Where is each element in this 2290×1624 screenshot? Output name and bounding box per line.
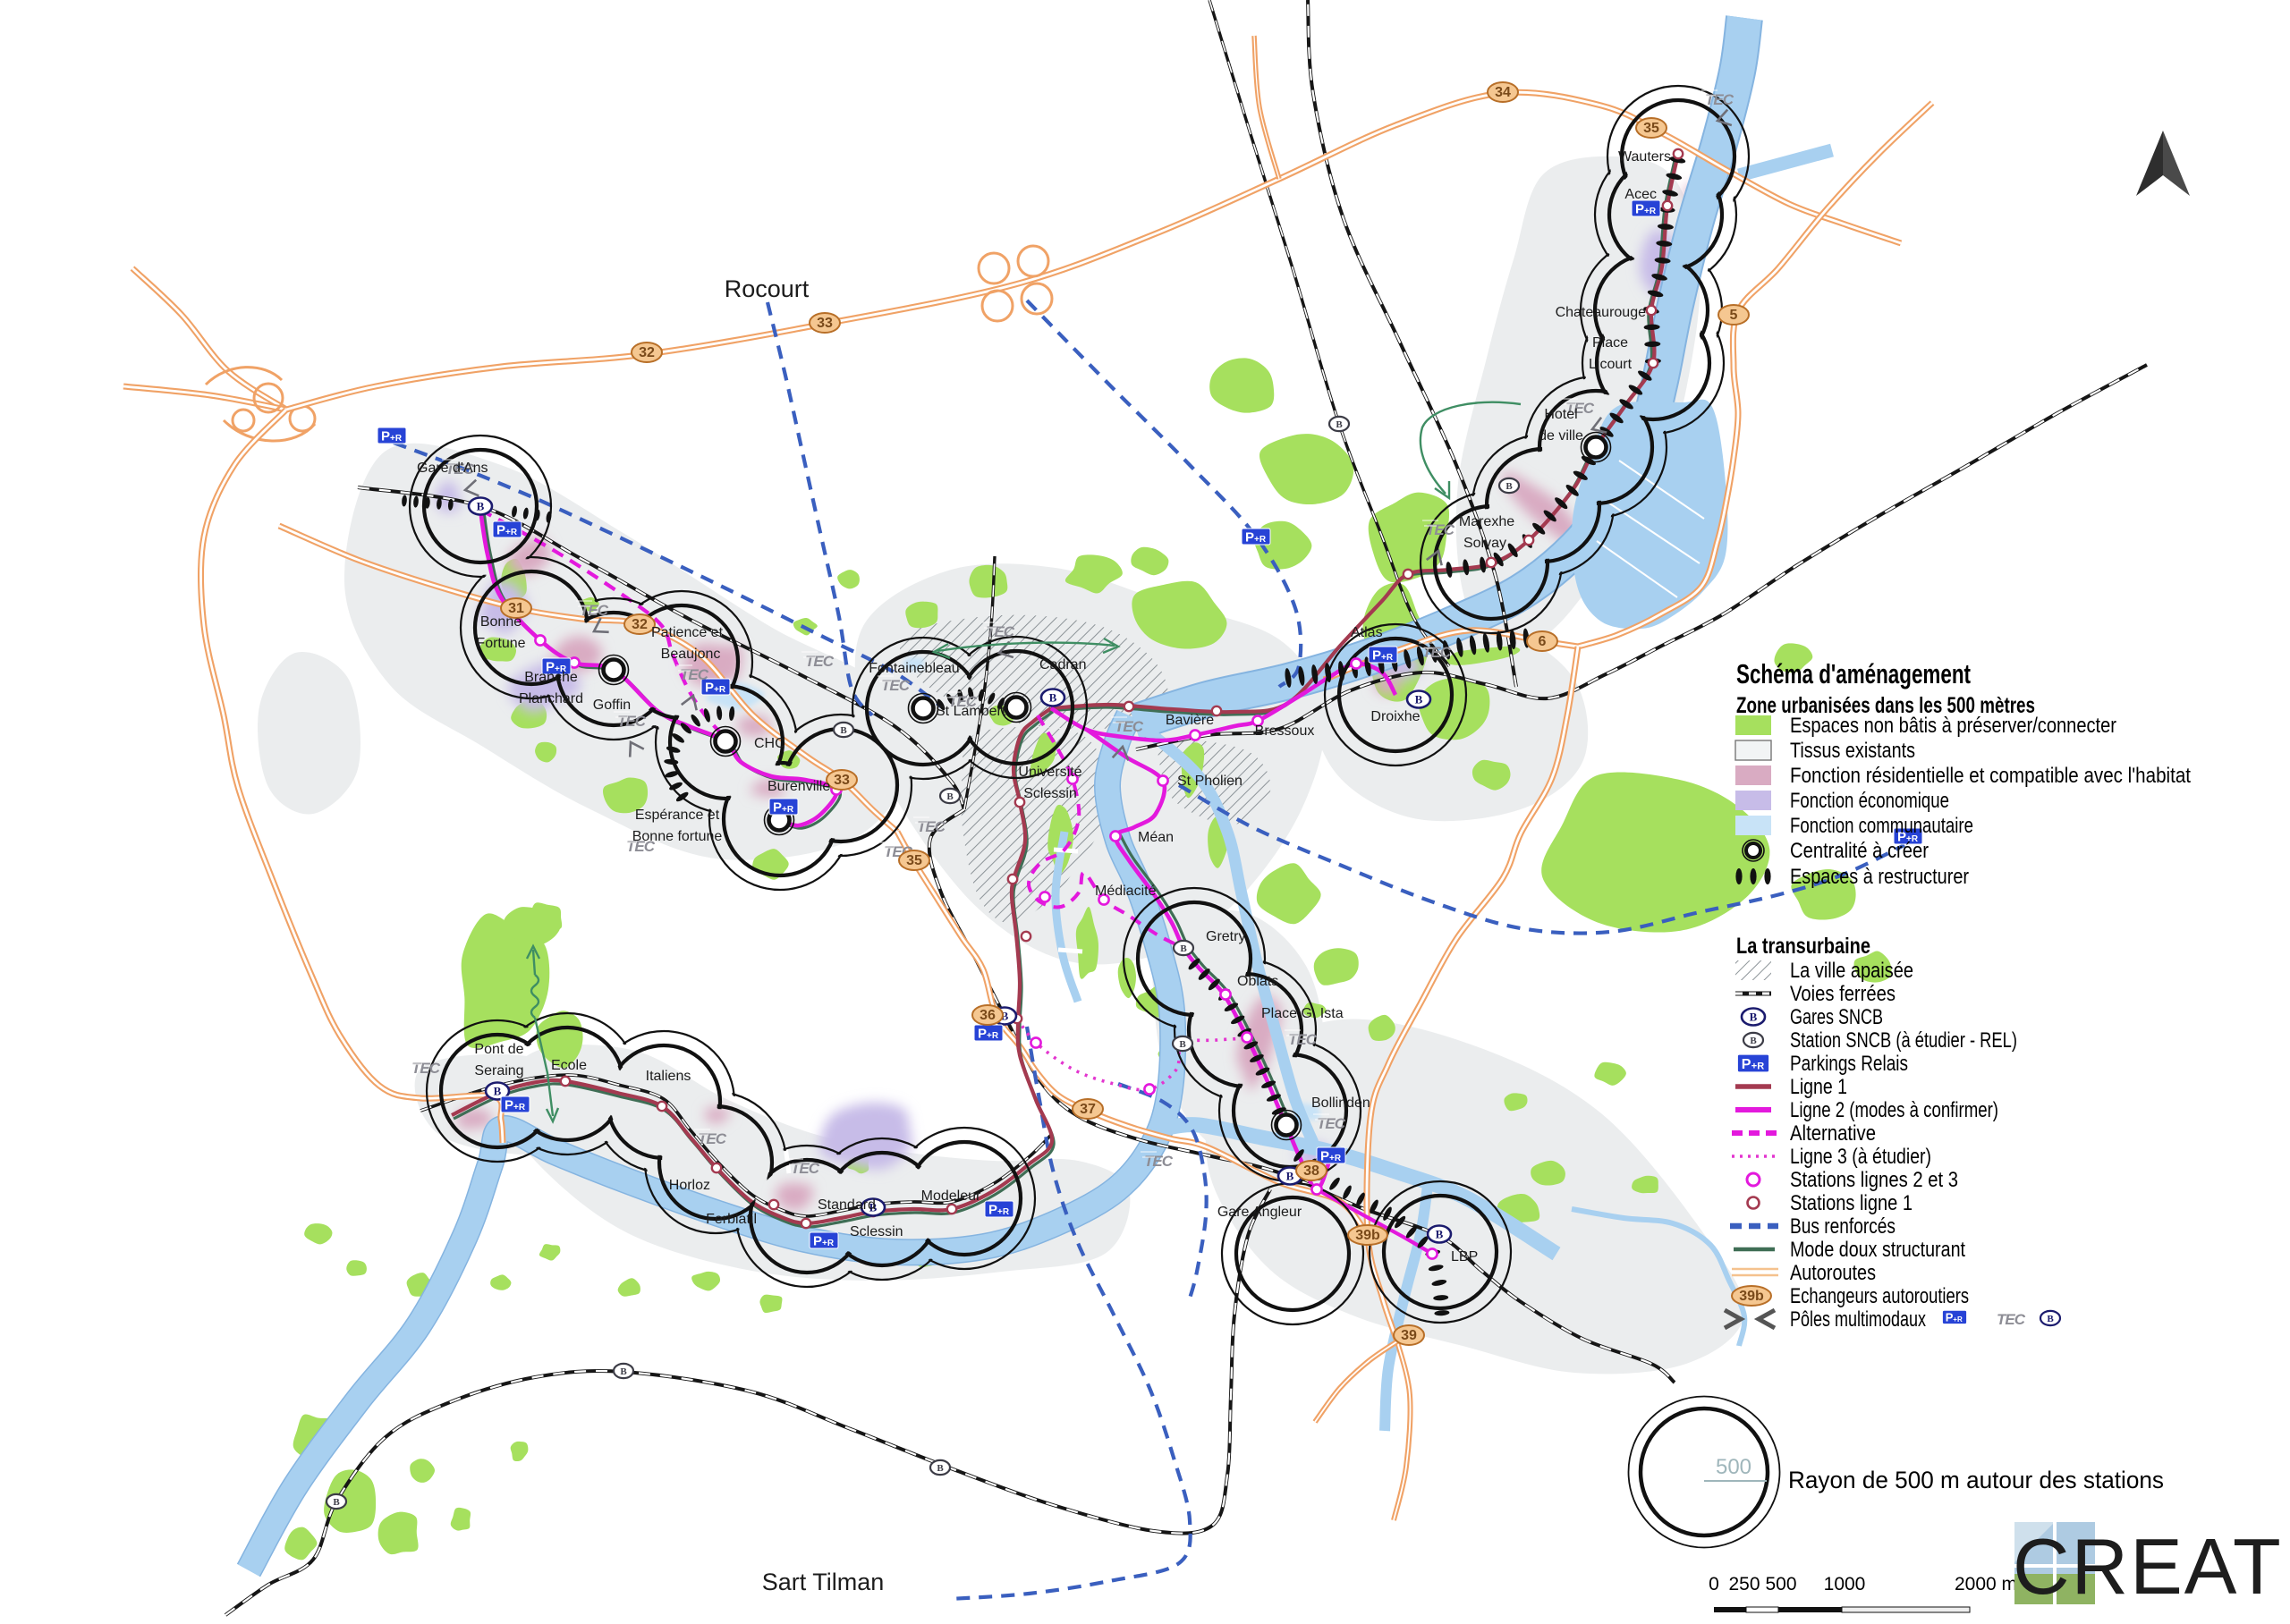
svg-text:P: P [1372,648,1381,664]
svg-text:1000: 1000 [1824,1574,1866,1594]
svg-text:Fonction communautaire: Fonction communautaire [1790,814,1973,838]
svg-text:TEC: TEC [881,677,911,694]
svg-text:Université: Université [1018,765,1081,780]
svg-text:B: B [840,725,847,736]
svg-text:Ligne 3 (à étudier): Ligne 3 (à étudier) [1790,1145,1931,1169]
svg-text:Bonne: Bonne [480,614,522,630]
svg-text:Schéma d'aménagement: Schéma d'aménagement [1736,658,1971,689]
svg-text:Pont de: Pont de [474,1042,523,1057]
svg-text:Voies ferrées: Voies ferrées [1790,982,1896,1006]
svg-text:+R: +R [1254,535,1267,545]
svg-text:P: P [1245,530,1254,546]
svg-text:Gretry: Gretry [1206,929,1245,944]
svg-text:Alternative: Alternative [1790,1121,1876,1146]
svg-text:Branche: Branche [524,670,578,685]
svg-text:Bus renforcés: Bus renforcés [1790,1214,1896,1239]
svg-text:TEC: TEC [680,666,709,683]
svg-text:0: 0 [1709,1574,1719,1594]
svg-text:TEC: TEC [1997,1311,2026,1328]
svg-text:35: 35 [906,853,922,868]
svg-text:P: P [978,1027,987,1042]
svg-text:+R: +R [1329,1154,1342,1163]
svg-text:La transurbaine: La transurbaine [1736,934,1870,959]
svg-text:P: P [496,523,505,538]
svg-text:P: P [505,1098,513,1113]
svg-text:B: B [1049,691,1057,705]
svg-text:B: B [1180,943,1187,954]
svg-text:P: P [1320,1149,1329,1164]
svg-text:Rocourt: Rocourt [725,275,810,302]
svg-text:B: B [1336,419,1343,430]
svg-text:Oblats: Oblats [1237,974,1278,989]
svg-text:Licourt: Licourt [1589,357,1633,372]
svg-text:Ligne 2 (modes à confirmer): Ligne 2 (modes à confirmer) [1790,1098,1998,1122]
svg-text:Rayon de 500 m autour des stat: Rayon de 500 m autour des stations [1788,1467,2164,1493]
svg-text:B: B [620,1366,627,1377]
svg-text:B: B [333,1497,340,1508]
svg-text:P: P [1742,1057,1751,1072]
svg-text:B: B [1505,481,1513,492]
svg-text:35: 35 [1643,121,1659,136]
svg-text:Hotel: Hotel [1544,407,1577,422]
svg-text:Standard: Standard [818,1197,876,1213]
svg-text:Modeleur: Modeleur [921,1188,981,1204]
svg-text:Sart Tilman: Sart Tilman [762,1569,885,1595]
svg-text:B: B [946,791,954,802]
svg-text:Marexhe: Marexhe [1459,514,1514,529]
svg-text:Méan: Méan [1138,830,1174,845]
svg-text:6: 6 [1539,634,1547,649]
svg-text:Wauters: Wauters [1618,149,1671,165]
svg-text:33: 33 [817,316,833,331]
svg-text:39: 39 [1401,1328,1417,1343]
svg-text:P: P [1635,202,1644,217]
svg-text:Droixhe: Droixhe [1370,709,1420,724]
svg-text:TEC: TEC [1426,521,1455,538]
svg-text:Seraing: Seraing [474,1063,523,1078]
svg-text:Burenville: Burenville [768,779,830,794]
svg-text:39b: 39b [1739,1289,1764,1304]
svg-text:Echangeurs autoroutiers: Echangeurs autoroutiers [1790,1284,1969,1308]
svg-text:Parkings Relais: Parkings Relais [1790,1052,1908,1076]
svg-text:Ligne 1: Ligne 1 [1790,1075,1847,1099]
svg-text:Espérance et: Espérance et [635,808,720,823]
svg-text:Bollinden: Bollinden [1311,1095,1370,1111]
svg-text:33: 33 [834,773,850,788]
svg-text:B: B [1750,1011,1758,1024]
svg-text:+R: +R [782,805,794,815]
svg-text:Italiens: Italiens [646,1069,691,1084]
svg-text:Fortune: Fortune [476,636,525,651]
svg-text:Planchard: Planchard [519,691,583,706]
svg-text:TEC: TEC [1144,1153,1174,1170]
svg-text:B: B [1286,1170,1294,1183]
svg-text:+R: +R [987,1031,999,1041]
svg-text:32: 32 [632,617,648,632]
svg-text:St Lambert: St Lambert [936,704,1006,719]
svg-text:+R: +R [1751,1062,1764,1072]
svg-text:St Pholien: St Pholien [1177,774,1243,789]
svg-text:Bonne fortune: Bonne fortune [632,829,723,844]
svg-text:TEC: TEC [1705,91,1734,108]
svg-text:Gare d'Ans: Gare d'Ans [417,461,488,476]
svg-text:34: 34 [1495,85,1511,100]
svg-text:Cadran: Cadran [1039,657,1086,672]
svg-text:Espaces non bâtis à préserver/: Espaces non bâtis à préserver/connecter [1790,714,2116,738]
svg-text:B: B [1415,693,1423,706]
svg-text:Tissus existants: Tissus existants [1790,739,1915,763]
svg-text:Stations ligne 1: Stations ligne 1 [1790,1191,1913,1215]
svg-text:Chateaurouge: Chateaurouge [1556,305,1647,320]
svg-text:B: B [1179,1039,1186,1050]
svg-text:TEC: TEC [580,602,609,619]
svg-text:500: 500 [1716,1455,1751,1479]
svg-text:500: 500 [1765,1574,1796,1594]
svg-text:Médiacité: Médiacité [1095,884,1157,899]
svg-text:+R: +R [997,1207,1010,1217]
svg-text:TEC: TEC [411,1060,441,1077]
svg-text:+R: +R [1953,1315,1963,1324]
svg-text:38: 38 [1303,1163,1319,1179]
svg-text:Ecole: Ecole [551,1058,587,1073]
svg-text:Patience et: Patience et [651,625,724,640]
svg-text:Fontainebleau: Fontainebleau [869,661,959,676]
svg-text:39b: 39b [1355,1228,1380,1243]
svg-text:Gares SNCB: Gares SNCB [1790,1005,1883,1029]
svg-text:TEC: TEC [805,653,835,670]
svg-text:Beaujonc: Beaujonc [661,647,721,662]
svg-text:36: 36 [980,1008,996,1023]
svg-text:Fonction résidentielle et comp: Fonction résidentielle et compatible ave… [1790,764,2191,788]
svg-text:Ferblatil: Ferblatil [706,1212,757,1227]
svg-text:Bressoux: Bressoux [1255,723,1315,739]
svg-text:+R: +R [822,1239,835,1248]
svg-text:Bavière: Bavière [1166,713,1214,728]
svg-text:B: B [477,500,485,513]
svg-text:Place G. Ista: Place G. Ista [1261,1006,1344,1021]
svg-text:Sclessin: Sclessin [1023,786,1077,801]
svg-text:Sclessin: Sclessin [850,1224,903,1239]
svg-text:Place: Place [1592,335,1628,351]
svg-text:B: B [937,1463,944,1474]
svg-text:Pôles multimodaux: Pôles multimodaux [1790,1307,1926,1332]
svg-text:B: B [1750,1036,1757,1046]
svg-text:P: P [988,1203,997,1218]
svg-text:Solvay: Solvay [1463,536,1506,551]
svg-text:+R: +R [505,528,518,537]
svg-text:Espaces à restructurer: Espaces à restructurer [1790,865,1969,889]
svg-text:250: 250 [1728,1574,1760,1594]
svg-text:37: 37 [1080,1102,1096,1117]
svg-text:CREAT: CREAT [2013,1522,2283,1611]
svg-text:2000 m: 2000 m [1955,1574,2017,1594]
svg-text:B: B [2047,1314,2054,1324]
svg-text:La ville apaisée: La ville apaisée [1790,959,1913,983]
svg-text:+R: +R [1381,653,1394,663]
svg-text:de ville: de ville [1539,428,1583,444]
svg-text:TEC: TEC [791,1160,820,1177]
svg-text:Gare Angleur: Gare Angleur [1217,1205,1302,1220]
svg-text:5: 5 [1730,308,1738,323]
svg-text:Stations lignes 2 et 3: Stations lignes 2 et 3 [1790,1168,1958,1192]
svg-text:32: 32 [639,345,655,360]
svg-text:TEC: TEC [698,1130,727,1147]
svg-text:LBP: LBP [1451,1249,1478,1265]
svg-text:+R: +R [714,685,726,695]
svg-text:TEC: TEC [617,713,647,730]
svg-text:TEC: TEC [1288,1031,1318,1048]
svg-text:B: B [1436,1228,1444,1241]
svg-text:P: P [773,800,782,816]
svg-text:CHC: CHC [754,736,785,751]
svg-text:TEC: TEC [1115,718,1144,735]
svg-text:Goffin: Goffin [593,698,631,713]
svg-text:TEC: TEC [986,623,1015,640]
svg-text:Station SNCB (à étudier - REL): Station SNCB (à étudier - REL) [1790,1028,2017,1053]
svg-text:Fonction économique: Fonction économique [1790,789,1949,813]
svg-text:B: B [494,1085,502,1098]
svg-text:TEC: TEC [1317,1115,1346,1132]
svg-text:P: P [381,429,390,444]
svg-text:+R: +R [390,434,403,444]
svg-text:Acec: Acec [1624,187,1657,202]
svg-text:P: P [813,1234,822,1249]
svg-text:Centralité à créer: Centralité à créer [1790,839,1929,863]
svg-text:Atlas: Atlas [1351,625,1383,640]
svg-text:TEC: TEC [1422,644,1452,661]
svg-text:+R: +R [1644,207,1657,216]
svg-text:TEC: TEC [917,818,946,835]
svg-text:Mode doux structurant: Mode doux structurant [1790,1238,1965,1262]
svg-text:+R: +R [513,1103,526,1112]
svg-text:Horloz: Horloz [669,1178,710,1193]
svg-text:Autoroutes: Autoroutes [1790,1261,1876,1285]
